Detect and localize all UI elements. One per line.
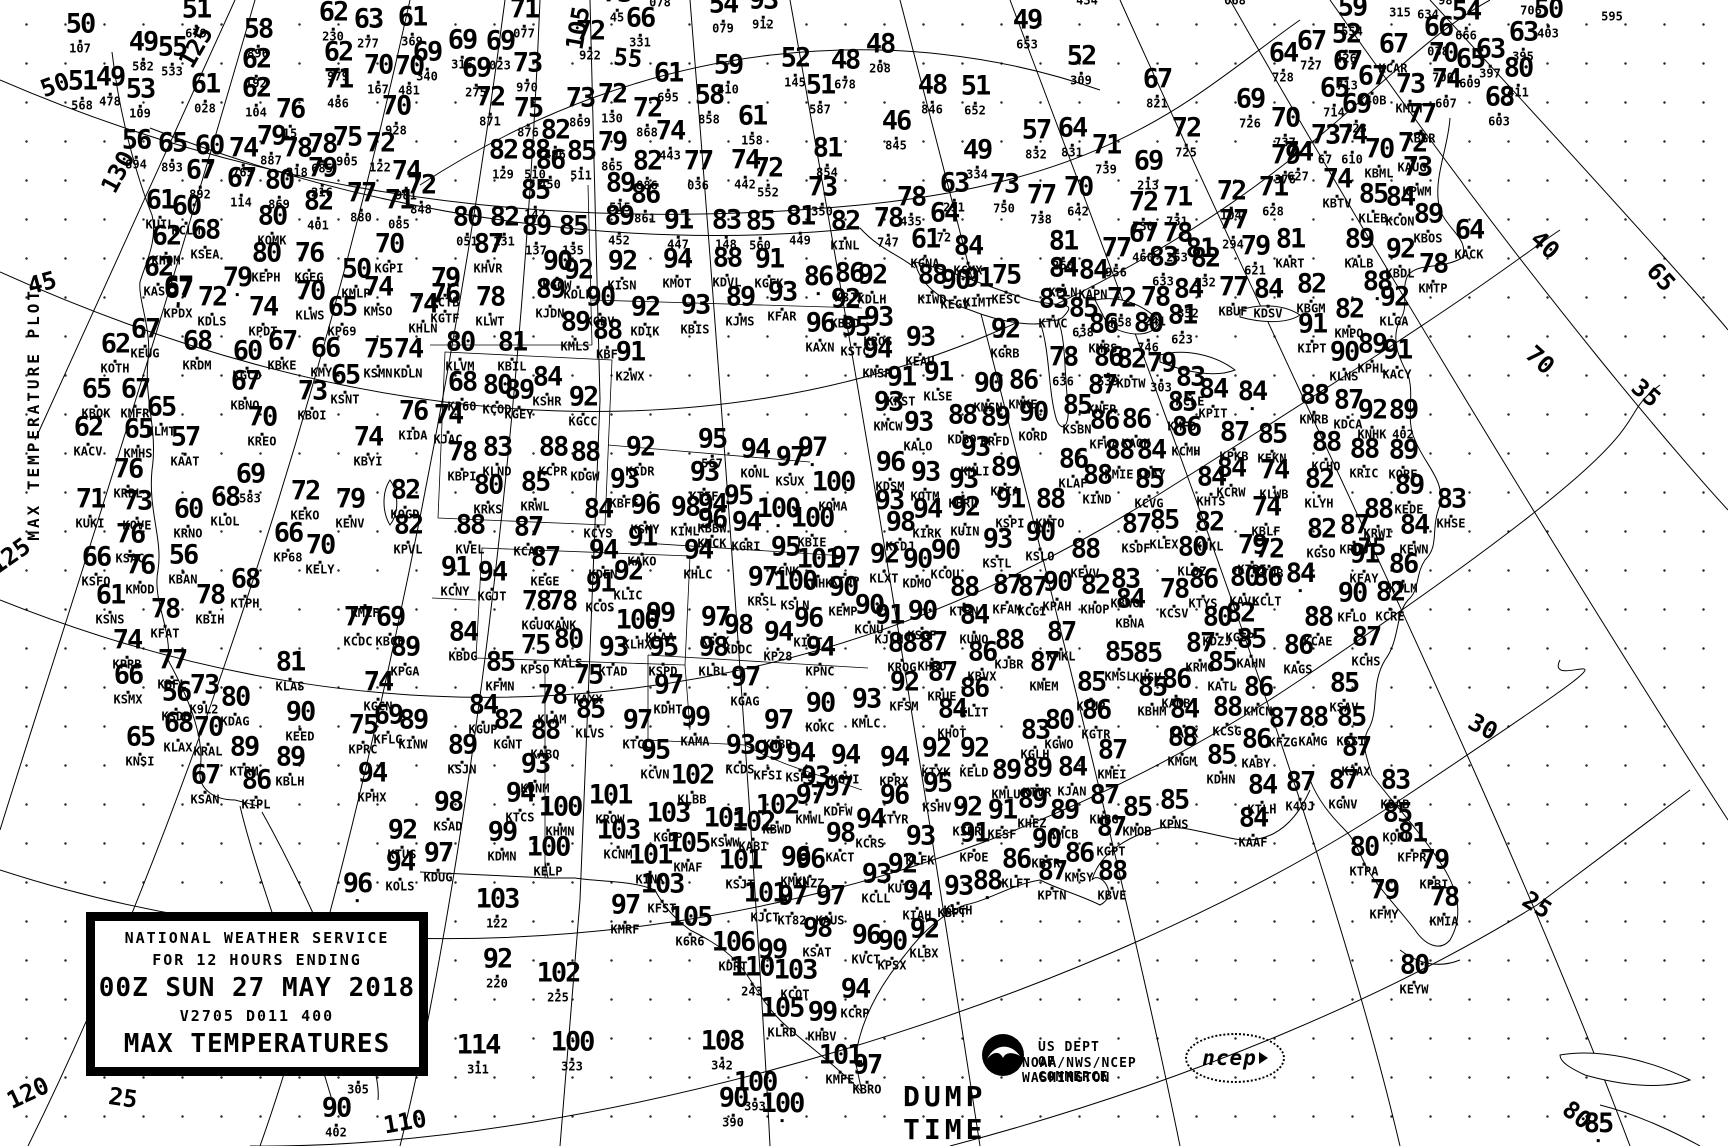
station-label: KLAX <box>164 743 193 754</box>
station-temp: 89 <box>399 709 428 734</box>
station-plot: 70KLWS <box>296 280 325 322</box>
station-plot: 82KCRE <box>1376 581 1405 623</box>
station-temp: 93 <box>906 326 935 351</box>
station-plot: 84KCON <box>1386 186 1415 228</box>
station-plot: 75KSMN <box>364 338 393 380</box>
station-label: 122 <box>476 919 519 930</box>
station-label: KMEM <box>1030 682 1059 693</box>
station-temp: 94 <box>764 621 793 646</box>
station-plot: 94KP28 <box>764 621 793 663</box>
station-temp: 67 <box>1143 68 1172 93</box>
station-temp: 74 <box>113 629 142 654</box>
station-temp: 48 <box>918 74 947 99</box>
station-label: KGDV <box>586 317 615 328</box>
station-temp: 99 <box>681 706 710 731</box>
station-label: KRIC <box>1350 469 1379 480</box>
station-plot: 82KGNT <box>494 709 523 751</box>
station-temp: 85 <box>1584 1112 1613 1137</box>
station-plot: 84 <box>1286 562 1315 593</box>
station-temp: 89 <box>276 746 305 771</box>
station-temp: 70 <box>375 233 404 258</box>
station-temp: 88 <box>1071 538 1100 563</box>
station-plot: 69340 <box>413 41 442 83</box>
station-plot: 64728 <box>1269 42 1298 84</box>
station-label: 403 <box>1534 29 1563 40</box>
station-label: 623 <box>1168 335 1197 346</box>
station-plot: 93912 <box>749 0 778 31</box>
station-plot: 86KGTR <box>1082 699 1111 741</box>
station-temp: 65 <box>82 378 111 403</box>
station-temp: 88 <box>1213 696 1242 721</box>
station-label: KBWD <box>756 825 799 836</box>
station-temp: 81 <box>1276 228 1305 253</box>
station-plot: 70167 <box>364 54 393 96</box>
station-plot: 86KLFT <box>1002 848 1031 890</box>
station-plot: 96 <box>343 872 372 903</box>
station-label: KENV <box>336 519 365 530</box>
station-plot: 78KLWT <box>476 286 505 328</box>
station-temp: 89 <box>448 734 477 759</box>
station-temp: 80 <box>1400 954 1429 979</box>
station-plot: 84KAAF <box>1239 807 1268 849</box>
station-temp: 85 <box>1160 789 1189 814</box>
station-temp: 100 <box>812 471 855 496</box>
station-temp: 84 <box>938 698 967 723</box>
station-temp: 67 <box>121 378 150 403</box>
station-plot: 79KFMY <box>1370 879 1399 921</box>
station-label: KCRP <box>841 1009 870 1020</box>
station-temp: 90 <box>1019 401 1048 426</box>
station-label: KBUF <box>1219 307 1248 318</box>
station-temp: 88 <box>531 719 560 744</box>
station-plot: 88KCAE <box>1304 606 1333 648</box>
station-temp: 73 <box>566 87 595 112</box>
station-plot: 105K6R6 <box>669 906 712 948</box>
station-temp: 103 <box>476 888 519 913</box>
station-temp: 50 <box>66 13 95 38</box>
station-label: KCRW <box>1217 488 1246 499</box>
station-plot: 70KBML <box>1365 138 1394 180</box>
station-plot: 79865 <box>598 131 627 173</box>
station-temp: 100 <box>761 1092 804 1117</box>
station-temp: 108 <box>701 1030 744 1055</box>
station-temp: 91 <box>964 267 993 292</box>
station-temp: 96 <box>852 924 881 949</box>
station-plot: 70KREO <box>248 406 277 448</box>
station-label: KTXK <box>922 768 951 779</box>
station-temp: 88 <box>713 247 742 272</box>
station-temp: 90 <box>806 692 835 717</box>
station-label: KDIK <box>631 327 660 338</box>
station-plot: 65KP69 <box>328 296 357 338</box>
station-plot: 77738 <box>1027 184 1056 226</box>
station-plot: 94KIRK <box>913 498 942 540</box>
station-temp: 67 <box>227 167 256 192</box>
station-plot: 89452 <box>605 205 634 247</box>
station-label: KSEA <box>191 250 220 261</box>
station-temp: 91 <box>924 361 953 386</box>
station-temp: 87 <box>1038 860 1067 885</box>
station-temp: 85 <box>1105 641 1134 666</box>
station-temp: 87 <box>1269 707 1298 732</box>
station-temp: 72 <box>198 286 227 311</box>
station-plot: 79887 <box>257 125 286 167</box>
station-plot: 105KLRD <box>761 997 804 1039</box>
station-temp: 78 <box>1160 578 1189 603</box>
station-label: KCNY <box>441 587 470 598</box>
station-temp: 70 <box>296 280 325 305</box>
station-plot: 90402 <box>322 1097 351 1139</box>
station-temp: 89 <box>1050 799 1079 824</box>
station-temp: 83 <box>1437 488 1466 513</box>
station-temp: 86 <box>1089 313 1118 338</box>
station-plot: 68KRDM <box>183 330 212 372</box>
station-plot: 64KACK <box>1455 219 1484 261</box>
station-label: KABY <box>1242 759 1271 770</box>
station-temp: 69 <box>462 57 491 82</box>
station-temp: 95 <box>641 739 670 764</box>
station-temp: 87 <box>1090 784 1119 809</box>
legend-version-line: V2705 D011 400 <box>180 1007 334 1025</box>
station-plot: 87KGNV <box>1329 769 1358 811</box>
station-label: KEMP <box>829 607 858 618</box>
station-label: KDLN <box>394 369 423 380</box>
station-temp: 74 <box>1260 459 1289 484</box>
station-label: KOKC <box>806 723 835 734</box>
station-temp: 83 <box>712 209 741 234</box>
station-label: 627 <box>1284 172 1313 183</box>
station-temp: 69 <box>1342 93 1371 118</box>
station-plot: 85KMSL <box>1105 641 1134 683</box>
station-label: 220 <box>483 979 512 990</box>
station-plot: 97KDHT <box>654 674 683 716</box>
station-temp: 66 <box>311 337 340 362</box>
station-temp: 85 <box>486 651 515 676</box>
station-plot: 65KSNT <box>331 364 360 406</box>
station-temp: 85 <box>1133 642 1162 667</box>
station-plot: 94KMOT <box>663 248 692 290</box>
station-plot: 91KIMT <box>964 267 993 309</box>
station-plot: 88 <box>973 869 1002 900</box>
station-temp: 75 <box>992 264 1021 289</box>
station-temp: 96 <box>794 607 823 632</box>
station-label: KMCW <box>874 422 903 433</box>
station-plot: 89KBOS <box>1414 203 1443 245</box>
station-temp: 92 <box>858 264 887 289</box>
station-temp: 94 <box>903 880 932 905</box>
station-label: KAAF <box>1239 838 1268 849</box>
station-temp: 70 <box>1064 176 1093 201</box>
station-temp: 84 <box>584 498 613 523</box>
station-temp: 97 <box>611 894 640 919</box>
station-temp: 85 <box>1150 509 1179 534</box>
station-temp: 82 <box>1117 348 1146 373</box>
station-temp: 97 <box>623 709 652 734</box>
station-temp: 84 <box>1058 756 1087 781</box>
station-plot: 90390 <box>719 1087 748 1129</box>
station-label: KSAN <box>191 795 220 806</box>
station-plot: 89KMLS <box>561 311 590 353</box>
station-plot: 94KOLS <box>386 851 415 893</box>
station-label: KONL <box>741 469 770 480</box>
station-plot: 57KAAT <box>171 426 200 468</box>
station-temp: 76 <box>114 458 143 483</box>
station-label: KELP <box>527 867 570 878</box>
station-temp: 91 <box>1350 543 1379 568</box>
station-label: 478 <box>96 97 125 108</box>
station-temp: 71 <box>510 0 539 23</box>
station-plot: 87KCHS <box>1352 626 1381 668</box>
station-plot: 79621 <box>1241 235 1270 277</box>
station-temp: 80 <box>474 474 503 499</box>
station-temp: 61 <box>398 6 427 31</box>
station-temp: 74 <box>1252 496 1281 521</box>
station-temp: 85 <box>521 471 550 496</box>
station-plot: 93KCDS <box>726 734 755 776</box>
station-plot: 88KDGW <box>571 441 600 483</box>
station-temp: 86 <box>1253 566 1282 591</box>
station-temp: 96 <box>796 848 825 873</box>
ncep-logo-icon: ncep <box>1185 1033 1285 1083</box>
station-label: KFSI <box>754 771 783 782</box>
station-temp: 77 <box>684 150 713 175</box>
station-label: KEUG <box>131 349 160 360</box>
station-temp: 90 <box>586 286 615 311</box>
station-temp: 52 <box>1332 23 1361 48</box>
station-temp: 87 <box>1122 513 1151 538</box>
station-label: KGTF <box>431 314 460 325</box>
station-temp: 62 <box>242 48 271 73</box>
station-label: KRSL <box>748 597 777 608</box>
station-label: KLAS <box>276 682 305 693</box>
station-temp: 59 <box>714 54 743 79</box>
station-label: 628 <box>1259 207 1288 218</box>
station-label: KDAG <box>221 717 250 728</box>
station-label: KBVX <box>968 672 997 683</box>
station-temp: 86 <box>1242 728 1271 753</box>
station-plot: 73970 <box>513 52 542 94</box>
station-label: 533 <box>158 67 187 78</box>
station-label: KCDC <box>344 637 373 648</box>
station-temp: 100 <box>527 836 570 861</box>
station-temp: 72 <box>754 157 783 182</box>
station-plot: 90KLNS <box>1330 341 1359 383</box>
station-plot: 90KEED <box>286 701 315 743</box>
station-plot: 70KRAL <box>194 716 223 758</box>
station-temp: 62 <box>324 41 353 66</box>
station-plot: 86861 <box>631 183 660 225</box>
station-temp: 63 <box>354 8 383 33</box>
station-temp: 60 <box>174 498 203 523</box>
station-temp: 63 <box>940 172 969 197</box>
station-plot: 706 <box>1520 6 1542 17</box>
station-temp: 70 <box>382 95 411 120</box>
station-temp: 82 <box>490 206 519 231</box>
station-plot: 92KLBX <box>910 918 939 960</box>
station-label: KBIS <box>681 325 710 336</box>
station-label: KBOI <box>298 411 327 422</box>
station-plot: 54079 <box>709 0 738 35</box>
station-plot: KBPT <box>938 902 967 919</box>
station-label: 036 <box>684 181 713 192</box>
station-plot: 84KPIT <box>1199 378 1228 420</box>
station-temp: 54 <box>709 0 738 18</box>
station-plot: 82KHOP <box>1081 574 1110 616</box>
station-label: KCOS <box>586 603 615 614</box>
station-plot: 78KMTP <box>1419 253 1448 295</box>
station-label: KBPT <box>938 908 967 919</box>
station-temp: 82 <box>1191 247 1220 272</box>
station-temp: 84 <box>960 604 989 629</box>
station-dot <box>777 524 780 527</box>
station-temp: 96 <box>631 494 660 519</box>
station-label: 678 <box>831 80 860 91</box>
station-plot: 92KDLH <box>858 264 887 306</box>
station-plot: 71486 <box>324 68 353 110</box>
station-plot: 78KGUC <box>522 590 551 632</box>
station-temp: 74 <box>1432 68 1461 93</box>
station-temp: 103 <box>774 959 817 984</box>
station-temp: 93 <box>904 411 933 436</box>
station-temp: 86 <box>1389 553 1418 578</box>
station-label: KDMO <box>903 579 932 590</box>
station-temp: 81 <box>276 651 305 676</box>
station-temp: 92 <box>910 918 939 943</box>
station-temp: 91 <box>441 556 470 581</box>
station-temp: 90 <box>931 539 960 564</box>
station-temp: 98 <box>803 917 832 942</box>
station-temp: 90 <box>286 701 315 726</box>
station-temp: 97 <box>778 885 807 910</box>
station-temp: 73 <box>1403 156 1432 181</box>
station-temp: 78 <box>1419 253 1448 278</box>
station-label: 642 <box>1064 207 1093 218</box>
station-plot: 88KBVE <box>1098 860 1127 902</box>
station-temp: 51 <box>68 70 97 95</box>
station-label: KSMN <box>364 369 393 380</box>
station-plot: 55533 <box>158 36 187 78</box>
station-temp: 80 <box>1178 536 1207 561</box>
station-temp: 88 <box>973 869 1002 894</box>
station-temp: 73 <box>1311 124 1340 149</box>
station-temp: 92 <box>388 819 417 844</box>
station-plot: 92220 <box>483 948 512 990</box>
station-temp: 81 <box>1049 230 1078 255</box>
station-label: KMSL <box>1105 672 1134 683</box>
station-temp: 56 <box>162 681 191 706</box>
station-label: KCMH <box>1172 447 1201 458</box>
station-temp: 74 <box>364 276 393 301</box>
station-label: KPVL <box>394 545 423 556</box>
station-label: KIDA <box>399 431 428 442</box>
station-temp: 86 <box>804 265 833 290</box>
station-plot: 89KINW <box>399 709 428 751</box>
station-temp: 80 <box>1504 57 1533 82</box>
station-plot: 68KSEA <box>191 219 220 261</box>
station-temp: 95 <box>841 316 870 341</box>
station-plot: 80KDAG <box>221 686 250 728</box>
station-temp: 70 <box>248 406 277 431</box>
station-plot: 72KEKO <box>291 480 320 522</box>
station-label: KGRB <box>991 349 1020 360</box>
station-plot: 94KHLC <box>684 539 713 581</box>
station-plot: 68KTPH <box>231 568 260 610</box>
station-plot: 89KGEY <box>505 379 534 421</box>
station-temp: 103 <box>647 802 690 827</box>
station-plot: 75KPSO <box>521 634 550 676</box>
station-label: 583 <box>236 494 265 505</box>
station-plot: 93KFAR <box>768 281 797 323</box>
station-plot: 68KLAX <box>164 712 193 754</box>
station-label: KBYI <box>354 457 383 468</box>
station-label: KFAR <box>768 312 797 323</box>
station-temp: 97 <box>424 842 453 867</box>
station-temp: 82 <box>489 139 518 164</box>
station-temp: 84 <box>1286 562 1315 587</box>
station-label: KMIE <box>1105 470 1134 481</box>
station-temp: 77 <box>158 649 187 674</box>
station-temp: 83 <box>1039 288 1068 313</box>
station-temp: 72 <box>1172 117 1201 142</box>
station-plot: 74KBTV <box>1323 168 1352 210</box>
station-label: KTVC <box>1039 319 1068 330</box>
station-temp: 78 <box>548 590 577 615</box>
station-temp: 80 <box>1350 836 1379 861</box>
station-plot: 90KORD <box>1019 401 1048 443</box>
station-temp: 92 <box>922 737 951 762</box>
station-plot: 64831 <box>1058 117 1087 159</box>
station-plot: 98KACT <box>826 822 855 864</box>
station-temp: 67 <box>131 318 160 343</box>
station-plot: 434 <box>1076 0 1098 7</box>
station-temp: 73 <box>123 490 152 515</box>
station-label: KMOB <box>1123 827 1152 838</box>
station-label: 869 <box>566 118 595 129</box>
station-temp: 72 <box>1255 538 1284 563</box>
station-plot: 90KSLO <box>1026 521 1055 563</box>
station-plot: 91KIPT <box>1298 313 1327 355</box>
station-temp: 84 <box>1217 457 1246 482</box>
station-label: KPAH <box>1043 602 1072 613</box>
station-temp: 65 <box>158 132 187 157</box>
station-temp: 89 <box>1395 474 1424 499</box>
station-label: 880 <box>347 213 376 224</box>
station-temp: 82 <box>1376 581 1405 606</box>
station-temp: 89 <box>230 736 259 761</box>
station-label: 511 <box>567 171 596 182</box>
station-temp: 94 <box>880 746 909 771</box>
station-temp: 90 <box>1032 828 1061 853</box>
station-plot: 87KEGE <box>531 546 560 588</box>
station-dot <box>1375 297 1378 300</box>
station-label: KAMG <box>1299 737 1328 748</box>
station-label: KMSY <box>1065 873 1094 884</box>
station-label: KBRO <box>853 1085 882 1096</box>
station-label: KLXT <box>870 574 899 585</box>
station-temp: 99 <box>754 740 783 765</box>
station-plot: 89KALB <box>1345 228 1374 270</box>
station-plot: 110243 <box>731 956 774 998</box>
station-temp: 90 <box>908 600 937 625</box>
station-temp: 67 <box>231 370 260 395</box>
station-temp: 99 <box>488 821 517 846</box>
station-temp: 85 <box>1208 651 1237 676</box>
station-temp: 75 <box>574 664 603 689</box>
station-plot: 90KGDV <box>586 286 615 328</box>
station-plot: 88KRIC <box>1350 438 1379 480</box>
station-temp: 82 <box>1335 298 1364 323</box>
station-temp: 79 <box>1370 879 1399 904</box>
